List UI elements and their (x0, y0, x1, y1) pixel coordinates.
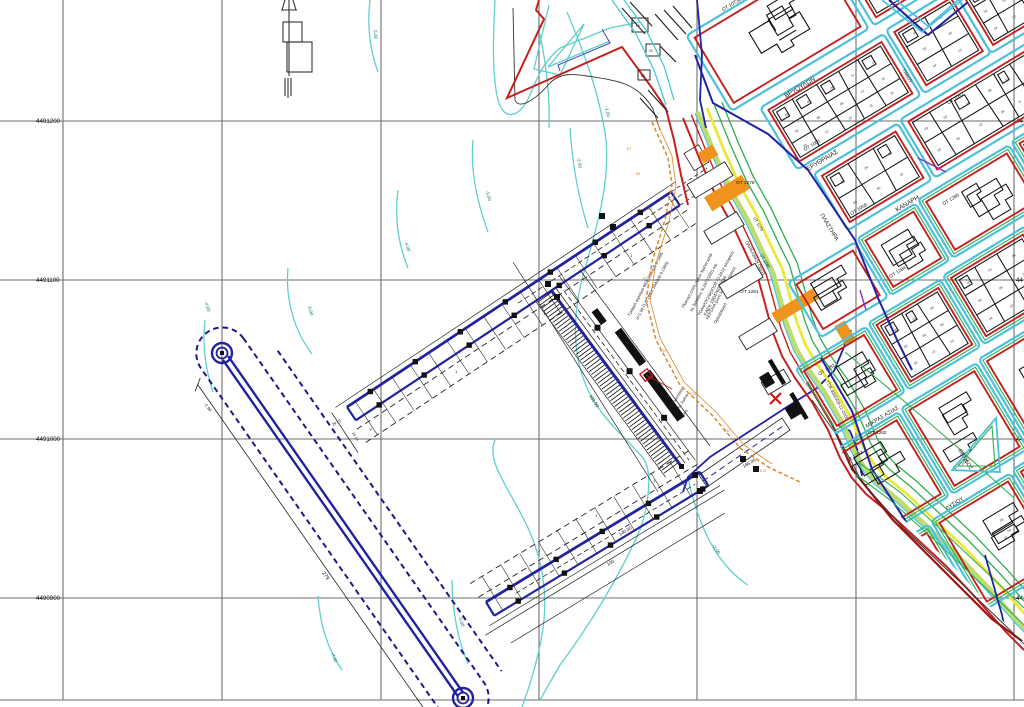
svg-text:Ε10: Ε10 (660, 349, 666, 353)
svg-text:4490900: 4490900 (36, 595, 61, 602)
svg-text:Ε8: Ε8 (636, 172, 640, 176)
svg-text:4491200: 4491200 (36, 118, 61, 125)
svg-text:4491000: 4491000 (36, 436, 61, 443)
svg-text:Ε9: Ε9 (643, 277, 647, 281)
svg-text:Ε7: Ε7 (627, 147, 631, 151)
svg-text:4491100: 4491100 (36, 277, 60, 284)
svg-text:Ε11: Ε11 (690, 392, 696, 396)
svg-text:44: 44 (1016, 277, 1023, 284)
svg-text:03: 03 (641, 74, 645, 78)
svg-text:OT 1281: OT 1281 (740, 289, 759, 295)
svg-text:OT 1282: OT 1282 (868, 430, 887, 436)
svg-text:Ε12: Ε12 (724, 429, 730, 433)
svg-text:OT 1278: OT 1278 (736, 180, 755, 186)
svg-text:-3.00: -3.00 (373, 28, 379, 39)
svg-text:02: 02 (649, 49, 653, 53)
svg-text:Ε13: Ε13 (760, 469, 766, 473)
